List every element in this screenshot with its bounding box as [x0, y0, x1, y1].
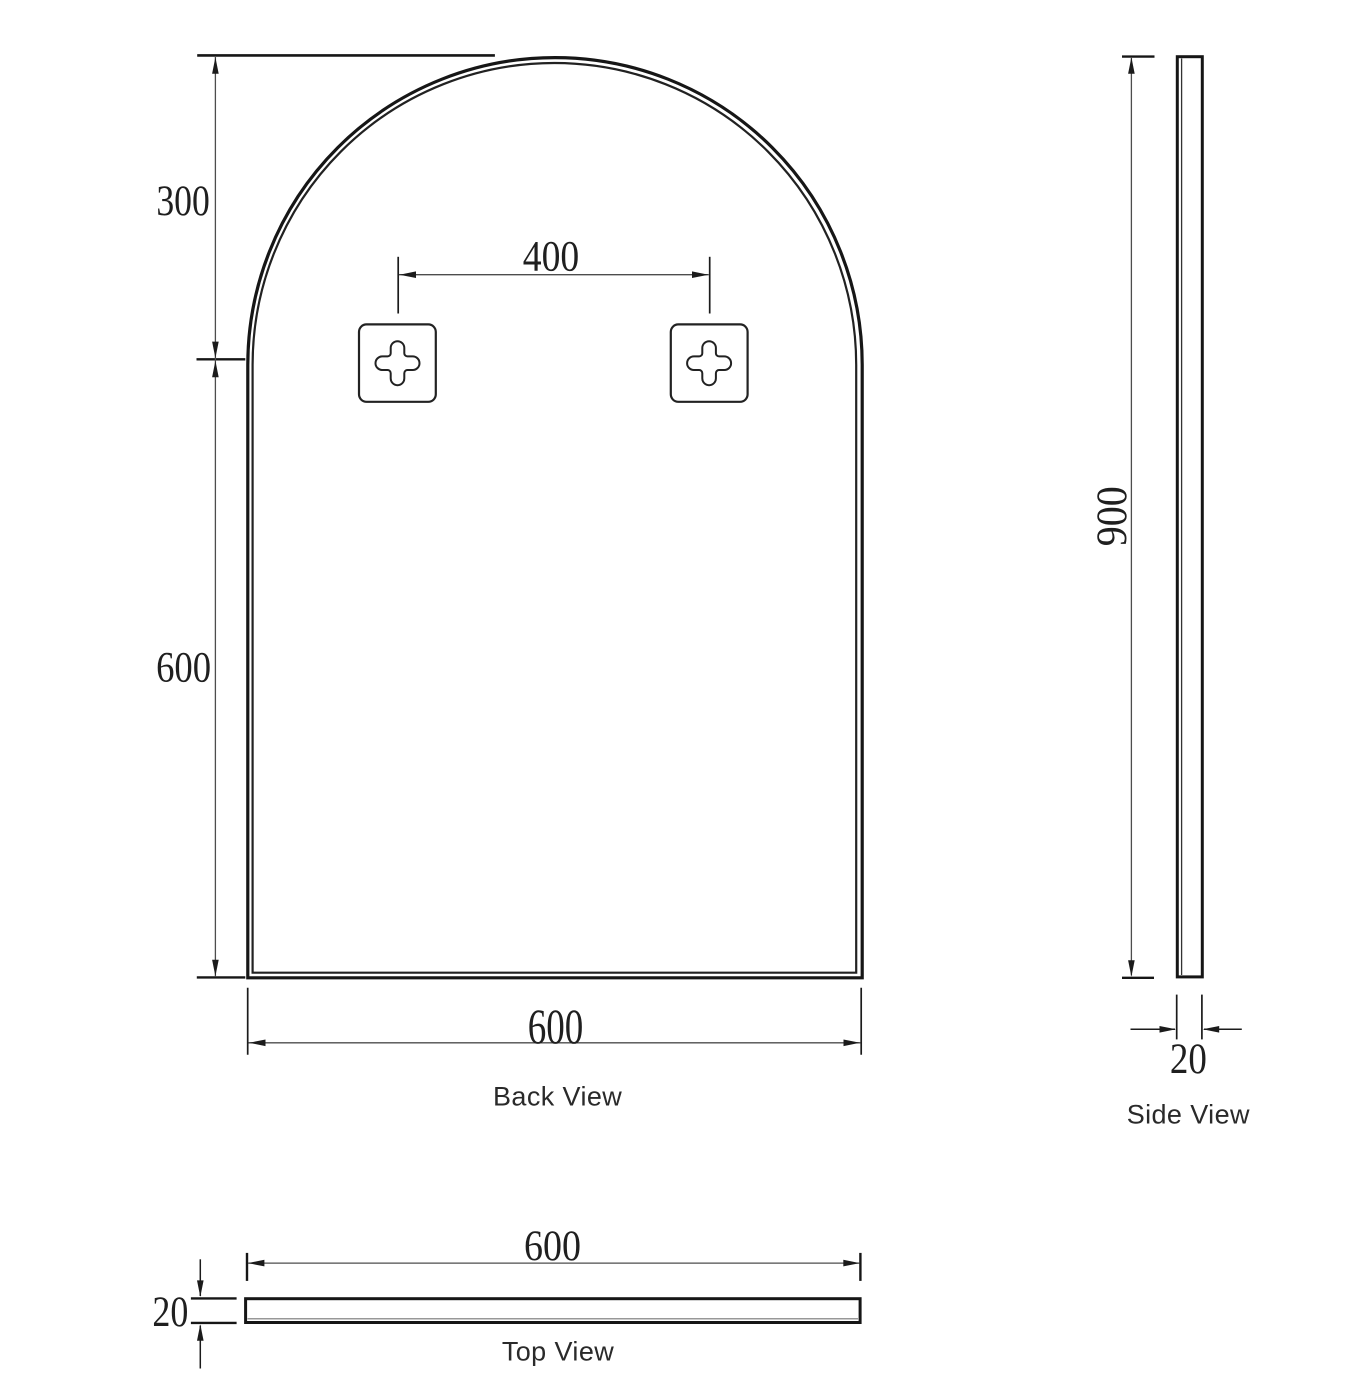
svg-text:300: 300: [156, 177, 210, 225]
svg-text:600: 600: [524, 1222, 581, 1270]
svg-text:Top View: Top View: [502, 1337, 614, 1367]
svg-text:900: 900: [1088, 486, 1136, 546]
svg-text:600: 600: [528, 998, 584, 1054]
svg-text:20: 20: [1170, 1035, 1207, 1083]
svg-text:600: 600: [156, 643, 211, 691]
svg-text:400: 400: [523, 233, 580, 281]
svg-text:20: 20: [152, 1288, 188, 1336]
svg-text:Back View: Back View: [493, 1082, 622, 1112]
svg-text:Side View: Side View: [1127, 1099, 1250, 1129]
